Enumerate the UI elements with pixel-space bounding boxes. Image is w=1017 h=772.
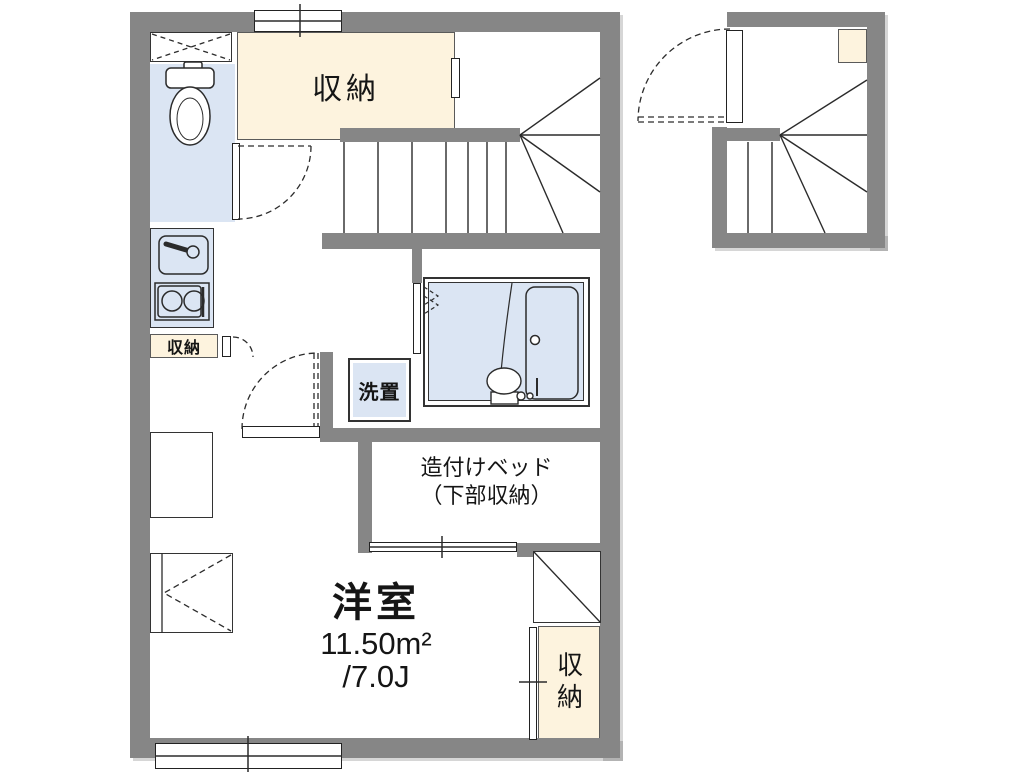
wall-upper-right bbox=[867, 12, 885, 248]
wall-upper-bottom bbox=[712, 233, 885, 248]
wall-halldoor-side bbox=[320, 352, 333, 432]
built-in-bed-line1: 造付けベッド bbox=[420, 454, 552, 482]
wall-upper-top bbox=[727, 12, 884, 27]
area-tatami-label: /7.0J bbox=[276, 661, 476, 693]
window-top bbox=[254, 10, 342, 32]
area-sqm-label: 11.50m² bbox=[276, 628, 476, 660]
shelf-cross-box bbox=[150, 32, 232, 62]
wall-bathdoor-stub bbox=[412, 249, 422, 283]
window-bottom bbox=[155, 743, 342, 769]
folding-box bbox=[150, 553, 233, 633]
storage-right-label: 収納 bbox=[538, 626, 600, 740]
wall-main-left bbox=[130, 12, 150, 758]
washer-space-label: 洗置 bbox=[348, 358, 411, 422]
wall-main-top bbox=[130, 12, 620, 32]
storage-top-label: 収納 bbox=[237, 32, 455, 140]
stairs-upper bbox=[748, 80, 867, 233]
toilet-room bbox=[150, 64, 235, 222]
wall-stairs-bottom bbox=[322, 233, 600, 249]
bath-door bbox=[413, 283, 421, 354]
bed-front-window bbox=[369, 542, 517, 552]
western-room-label: 洋室 bbox=[276, 576, 476, 622]
built-in-bed-label: 造付けベッド （下部収納） bbox=[373, 450, 600, 514]
counter-box bbox=[150, 432, 213, 518]
upper-entry-door bbox=[726, 30, 743, 123]
wall-upper-stub bbox=[712, 128, 780, 141]
diagonal-box bbox=[533, 551, 601, 623]
hall-door-threshold bbox=[242, 426, 320, 438]
kitchen-unit bbox=[150, 228, 214, 328]
wall-main-right bbox=[600, 12, 620, 758]
bath-unit-inner bbox=[428, 282, 584, 401]
upper-landing-storage bbox=[838, 29, 867, 63]
toilet-door bbox=[232, 143, 240, 220]
built-in-bed-line2: （下部収納） bbox=[420, 482, 552, 510]
storage-right-door bbox=[529, 627, 537, 740]
storage-small-door bbox=[222, 336, 231, 357]
wall-bed-left bbox=[358, 428, 372, 553]
storage-small-label: 収納 bbox=[150, 334, 218, 358]
floor-plan: 収納 収納 洗置 造付けベッド （下部収納） 洋室 11.50m² /7.0J … bbox=[0, 0, 1017, 772]
wall-upper-left bbox=[712, 127, 727, 233]
